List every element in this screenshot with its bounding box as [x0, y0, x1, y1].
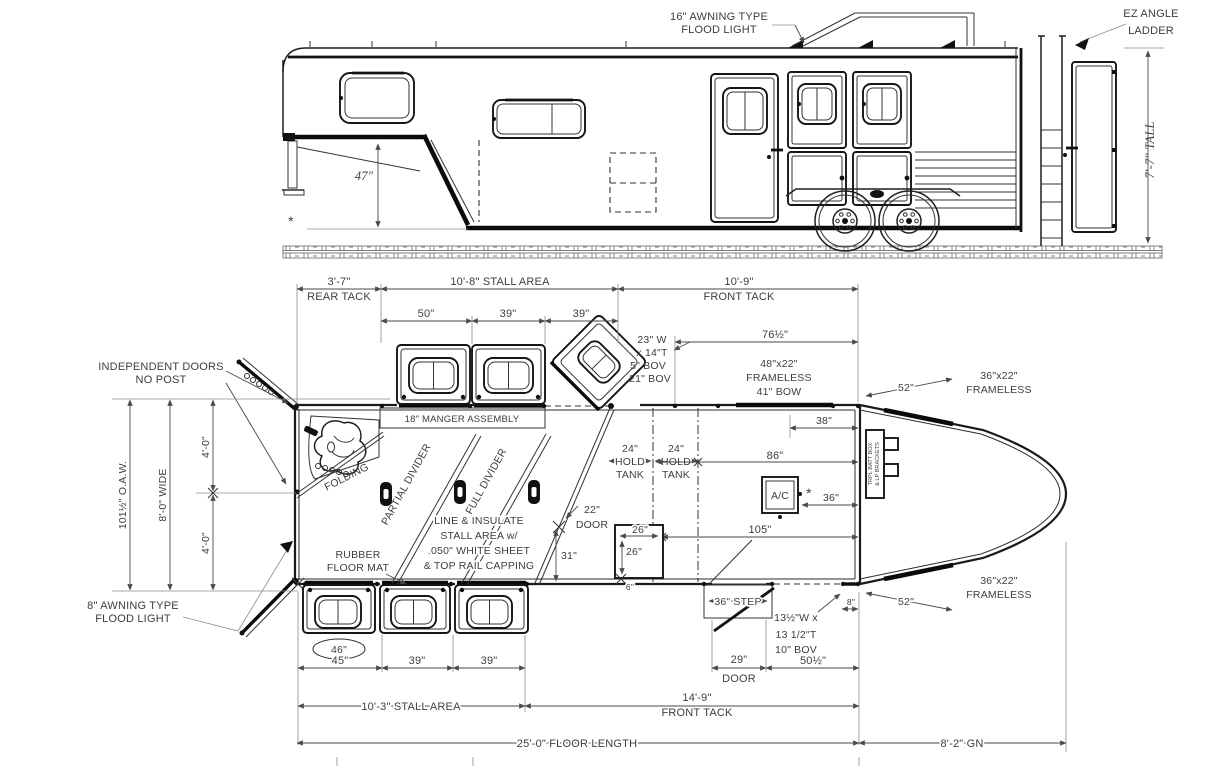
dim-6: 6" [626, 582, 634, 592]
dim-52-top: 52" [898, 382, 914, 394]
dim-26-w: 26" [632, 524, 648, 536]
dim-4ft-bottom: 4'-0" [200, 532, 212, 554]
dim-86: 86" [767, 450, 784, 462]
dim-50half: 50½" [800, 655, 826, 667]
front-tack-label: FRONT TACK [703, 291, 775, 303]
floor-plan-drawing: FOLDING 18" MANGER ASSEMBLY PARTIAL DIVI… [87, 276, 1066, 766]
independent-doors-label-1: INDEPENDENT DOORS [98, 361, 223, 373]
rear-ladder [1038, 36, 1066, 246]
ground-hatch [283, 246, 1162, 258]
insulate-note-4: & TOP RAIL CAPPING [424, 560, 535, 572]
front-window-spec-3: 41" BOW [757, 386, 802, 398]
dim-38: 38" [816, 415, 832, 427]
door-29-dim: 29" [731, 654, 748, 666]
door22-label: DOOR [576, 519, 609, 531]
tank1-label1: HOLD [615, 456, 645, 468]
dim-26-h: 26" [626, 546, 642, 558]
manger-window-1 [397, 345, 470, 404]
manger-label: 18" MANGER ASSEMBLY [405, 414, 520, 425]
lower-compartment-doors [788, 152, 911, 205]
nose-window-bottom-1: 36"x22" [980, 575, 1018, 587]
step-label: 36" STEP [714, 596, 761, 608]
rear-window-spec-2: x 14"T [636, 347, 668, 359]
rear-window-spec-1: 23" W [637, 334, 666, 346]
nose-window-top-1: 36"x22" [980, 370, 1018, 382]
height-dim: 7'-7" TALL [1143, 121, 1157, 178]
step-box [704, 540, 774, 631]
ac-asterisk: * [806, 485, 812, 501]
bov-window-spec-1: 13½"W x [774, 612, 818, 624]
tank2-label2: TANK [662, 469, 690, 481]
side-slider-window [492, 100, 585, 138]
folding-label: FOLDING [322, 461, 370, 494]
tank1-label2: TANK [616, 469, 644, 481]
stall-area-bottom-dim: 10'-3" STALL AREA [361, 701, 461, 713]
flood-light-8-label-1: 8" AWNING TYPE [87, 600, 179, 612]
nose-window-bottom-2: FRAMELESS [966, 589, 1031, 601]
hidden-tank-outline [610, 153, 656, 212]
win-dim-50: 50" [418, 308, 435, 320]
wide-dim: 8'-0" WIDE [157, 468, 169, 521]
dim-76half: 76½" [762, 329, 788, 341]
front-tack-bottom-dim: 14'-9" [682, 692, 711, 704]
stall-dividers [380, 408, 614, 585]
insulate-note-2: STALL AREA w/ [440, 530, 517, 542]
oaw-dim: 101½" O.A.W. [117, 461, 129, 530]
nose-window-top-2: FRAMELESS [966, 384, 1031, 396]
dim-8: 8" [847, 597, 855, 607]
bottom-window-1 [303, 585, 375, 633]
bottom-dimensions [297, 542, 1066, 766]
stall-drop-window-1 [788, 72, 846, 148]
bov-window-spec-2: 13 1/2"T [776, 629, 817, 641]
front-window-spec-1: 48"x22" [760, 358, 798, 370]
side-access-door [711, 74, 783, 222]
dim-36: 36" [823, 492, 839, 504]
front-escape-door [1063, 62, 1116, 232]
gooseneck-height-dim: 47" [355, 169, 374, 183]
tank2-dim: 24" [668, 443, 684, 455]
rear-tack-label: REAR TACK [307, 291, 371, 303]
battery-label-1: TRPL BATT BOX [868, 442, 874, 485]
flood-light-16-label-1: 16" AWNING TYPE [670, 11, 768, 23]
dim-4ft-top: 4'-0" [200, 436, 212, 458]
rear-window-spec-4: 21" BOV [629, 373, 671, 385]
rubber-mat-label-2: FLOOR MAT [327, 562, 390, 574]
manger-window-2 [472, 345, 545, 404]
bottom-window-3 [455, 585, 528, 633]
insulate-note-3: .050" WHITE SHEET [428, 545, 531, 557]
gooseneck-length-dim: 8'-2" GN [940, 738, 983, 750]
rear-tack-dim: 3'-7" [328, 276, 351, 288]
independent-doors-label-2: NO POST [136, 374, 187, 386]
front-tack-bottom-label: FRONT TACK [661, 707, 733, 719]
tank1-dim: 24" [622, 443, 638, 455]
flood-light-16-label-2: FLOOD LIGHT [681, 24, 757, 36]
win-dim-39a: 39" [500, 308, 517, 320]
win-dim-45: 45" [332, 655, 349, 667]
ladder-label-1: EZ ANGLE [1123, 8, 1178, 20]
stall-drop-window-2 [853, 72, 911, 148]
bottom-window-2 [380, 585, 450, 633]
blueprint-svg: 7'-7" TALL 47" * 16" AWNING TYPE FLOOD L… [0, 0, 1228, 766]
rear-doors-open [237, 358, 305, 637]
front-window-spec-2: FRAMELESS [746, 372, 811, 384]
win-dim-39d: 39" [481, 655, 498, 667]
battery-label-2: & LP BRACKETS [875, 442, 881, 486]
trailer-blueprint-page: 7'-7" TALL 47" * 16" AWNING TYPE FLOOD L… [0, 0, 1228, 766]
front-tack-dim: 10'-9" [724, 276, 753, 288]
gooseneck-nose [860, 405, 1066, 584]
door-29-label: DOOR [722, 673, 756, 685]
gooseneck-window [339, 73, 414, 123]
dim-105: 105" [748, 524, 771, 536]
win-dim-39b: 39" [573, 308, 590, 320]
rubber-mat-label-1: RUBBER [336, 549, 381, 561]
side-view-drawing: 7'-7" TALL 47" * 16" AWNING TYPE FLOOD L… [282, 8, 1179, 258]
ladder-label-2: LADDER [1128, 25, 1174, 37]
rear-window-spec-3: 5" BOV [630, 360, 666, 372]
win-dim-39c: 39" [409, 655, 426, 667]
flood-light-8-label-2: FLOOD LIGHT [95, 613, 171, 625]
dim-52-bottom: 52" [898, 596, 914, 608]
ac-label: A/C [771, 490, 789, 502]
full-divider-label: FULL DIVIDER [463, 446, 509, 516]
insulate-note-1: LINE & INSULATE [434, 515, 524, 527]
stall-area-top-dim: 10'-8" STALL AREA [450, 276, 550, 288]
floor-length-dim: 25'-0" FLOOR LENGTH [517, 738, 637, 750]
door22-dim: 22" [584, 504, 600, 516]
note-asterisk: * [288, 213, 294, 229]
dim-31: 31" [561, 550, 577, 562]
